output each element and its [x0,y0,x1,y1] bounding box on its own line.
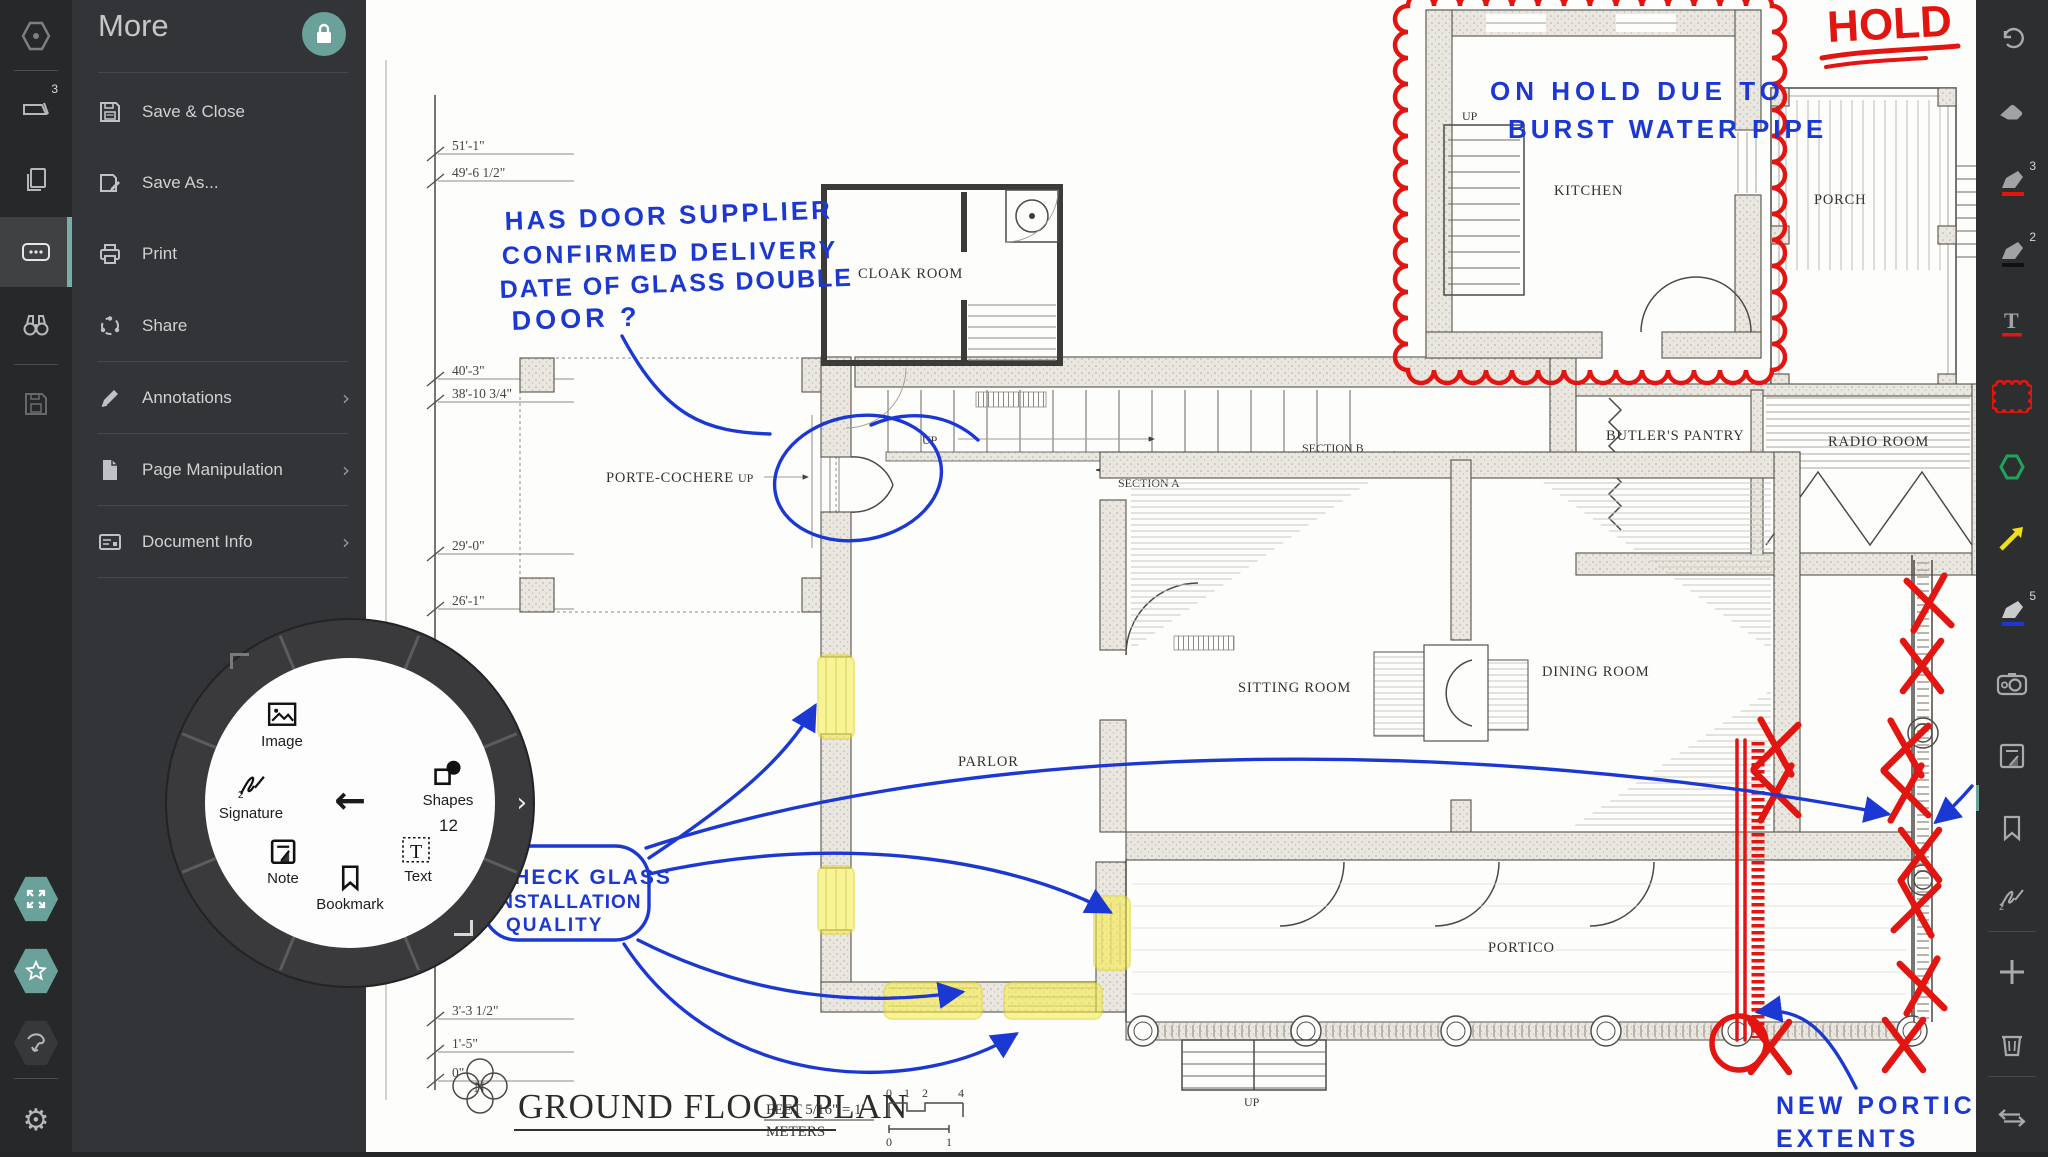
svg-text:PORCH: PORCH [1814,192,1866,208]
svg-text:CLOAK ROOM: CLOAK ROOM [858,266,963,282]
pages-button[interactable] [0,146,72,214]
document-info-icon [98,530,122,554]
plus-icon [1997,957,2027,987]
menu-item-page-manipulation[interactable]: Page Manipulation › [72,434,366,505]
more-menu-button[interactable] [0,218,72,286]
svg-text:PORTE-COCHERE: PORTE-COCHERE [606,470,734,486]
svg-text:DATE OF GLASS DOUBLE: DATE OF GLASS DOUBLE [499,264,853,304]
menu-item-save-as[interactable]: Save As... [72,147,366,218]
svg-text:KITCHEN: KITCHEN [1554,183,1623,199]
svg-text:UP: UP [1462,109,1478,123]
svg-text:UP: UP [1244,1095,1260,1109]
arrow-tool-button[interactable] [1976,509,2048,567]
radial-item-bookmark[interactable]: Bookmark [316,863,384,914]
pages-icon [23,166,49,194]
star-icon [24,959,48,983]
add-tool-button[interactable] [1976,943,2048,1001]
rail-divider [14,1078,58,1079]
annotation-toolbar: 3 2 T 5 [1976,0,2048,1152]
svg-text:1: 1 [946,1135,952,1149]
save-as-icon [98,171,122,195]
trash-icon [1999,1030,2025,1058]
arrow-icon [1995,521,2029,555]
panel-title: More [98,8,169,44]
hexagon-logo-icon [19,19,53,53]
eraser-tool-button[interactable] [1976,82,2048,140]
pen-icon [1996,596,2028,628]
porte-cochere: PORTE-COCHERE UP [520,358,839,612]
open-documents-button[interactable]: 3 [0,74,72,142]
svg-text:4: 4 [958,1086,964,1100]
signature-icon: 2 [1997,886,2027,912]
text-icon: T [401,835,435,865]
polygon-tool-button[interactable] [1976,438,2048,496]
pen-black-count-badge: 2 [2029,230,2036,244]
svg-text:DOOR ?: DOOR ? [511,302,641,336]
svg-text:40'-3": 40'-3" [452,363,485,378]
radial-item-label: Image [261,733,303,750]
menu-item-label: Print [142,244,177,264]
radial-item-label: Text [404,868,432,885]
svg-text:BUTLER'S PANTRY: BUTLER'S PANTRY [1606,428,1745,444]
svg-text:DINING ROOM: DINING ROOM [1542,664,1649,680]
search-button[interactable] [0,290,72,358]
touch-gesture-icon [24,1031,48,1055]
svg-text:T: T [410,841,422,863]
signature-tool-button[interactable]: 2 [1976,870,2048,928]
signature-icon: 2 [235,772,267,802]
menu-item-share[interactable]: Share [72,290,366,361]
undo-button[interactable] [1976,10,2048,68]
bookmark-icon [338,863,362,893]
svg-text:N: N [474,1080,485,1096]
shapes-icon [432,759,464,789]
svg-text:2: 2 [922,1086,928,1100]
fullscreen-button[interactable] [0,865,72,933]
panel-divider [98,577,348,578]
kitchen: UP KITCHEN [1426,10,1761,358]
svg-text:HAS DOOR SUPPLIER: HAS DOOR SUPPLIER [504,195,833,236]
svg-text:SITTING ROOM: SITTING ROOM [1238,680,1351,696]
settings-button[interactable]: ⚙ [0,1086,72,1154]
pen-icon [98,386,122,410]
pin-panel-button[interactable] [302,12,346,56]
printer-icon [98,242,122,266]
radial-item-label: Note [267,870,299,887]
svg-text:0: 0 [886,1086,892,1100]
share-icon [98,314,122,338]
text-highlight-tool-button[interactable]: T [1976,295,2048,353]
svg-text:EXTENTS: EXTENTS [1776,1125,1919,1152]
svg-text:1'-5": 1'-5" [452,1036,478,1051]
radial-item-note[interactable]: Note [267,837,299,888]
svg-text:29'-0": 29'-0" [452,538,485,553]
menu-item-print[interactable]: Print [72,218,366,289]
lock-icon [314,23,334,45]
svg-text:BURST WATER PIPE: BURST WATER PIPE [1508,114,1827,144]
binoculars-icon [21,310,51,338]
toolbar-divider [1988,931,2036,932]
pen-blue-count-badge: 5 [2029,589,2036,603]
radial-item-label: Bookmark [316,896,384,913]
radial-next-chevron-icon[interactable]: › [517,788,527,818]
chevron-right-icon: › [342,530,350,554]
hexagon-icon [1997,452,2027,482]
save-icon [23,391,49,417]
selection-corner-mark [230,653,249,669]
pen-icon [1996,237,2028,269]
svg-text:HOLD: HOLD [1826,0,1953,52]
svg-text:T: T [2004,308,2019,333]
pdf-page[interactable]: 51'-1" 49'-6 1/2" 40'-3" 38'-10 3/4" 29'… [366,0,1976,1152]
swap-arrows-icon [1996,1106,2028,1130]
radial-item-text[interactable]: T 12 Text [401,835,435,886]
highlight-annotations[interactable] [818,655,1130,1019]
svg-text:38'-10 3/4": 38'-10 3/4" [452,386,512,401]
eraser-icon [1997,99,2027,123]
document-tray-icon [21,95,51,121]
svg-text:0: 0 [886,1135,892,1149]
menu-item-document-info[interactable]: Document Info › [72,506,366,577]
undo-icon [1997,24,2027,54]
svg-text:RADIO ROOM: RADIO ROOM [1828,434,1929,450]
menu-item-label: Page Manipulation [142,460,283,480]
svg-text:51'-1": 51'-1" [452,138,485,153]
svg-text:PORTICO: PORTICO [1488,940,1555,956]
gear-icon: ⚙ [23,1103,50,1138]
save-icon [98,100,122,124]
svg-text:0": 0" [452,1065,464,1080]
menu-item-label: Save & Close [142,102,245,122]
note-icon [269,837,297,867]
svg-text:FEET 5/16" = 1': FEET 5/16" = 1' [766,1102,865,1118]
pen-tool-red-button[interactable]: 3 [1976,153,2048,211]
revision-cloud-icon [1992,379,2032,413]
radial-item-label: Signature [219,805,283,822]
radial-item-signature[interactable]: 2 Signature [219,772,283,823]
svg-text:3'-3 1/2": 3'-3 1/2" [452,1003,499,1018]
favorites-button[interactable] [0,937,72,1005]
floor-plan-drawing: 51'-1" 49'-6 1/2" 40'-3" 38'-10 3/4" 29'… [366,0,1976,1152]
svg-text:ON HOLD DUE TO: ON HOLD DUE TO [1490,76,1785,106]
image-icon [267,700,297,730]
quick-save-button[interactable] [0,370,72,438]
pen-tool-blue-button[interactable]: 5 [1976,583,2048,641]
documents-count-badge: 3 [51,82,58,96]
selection-corner-mark [454,920,473,936]
svg-text:26'-1": 26'-1" [452,593,485,608]
main-rooms: PARLOR SITTING ROOM DINING ROOM [958,452,1912,926]
svg-text:2: 2 [1999,902,2004,912]
text-underline-icon: T [1997,308,2027,340]
menu-item-label: Share [142,316,187,336]
pen-tool-black-button[interactable]: 2 [1976,224,2048,282]
left-rail: 3 [0,0,72,1152]
photo-note-button[interactable] [1976,655,2048,713]
svg-text:METERS: METERS [766,1124,825,1140]
bookmark-icon [2000,814,2024,842]
svg-text:49'-6 1/2": 49'-6 1/2" [452,165,505,180]
svg-text:CONFIRMED DELIVERY: CONFIRMED DELIVERY [502,236,839,270]
pen-icon [1996,166,2028,198]
menu-item-annotations[interactable]: Annotations › [72,362,366,433]
page-icon [98,458,122,482]
swap-toolbar-side-button[interactable] [1976,1089,2048,1147]
camera-icon [1996,671,2028,697]
svg-text:PARLOR: PARLOR [958,754,1019,770]
pen-red-count-badge: 3 [2029,159,2036,173]
radial-item-shapes[interactable]: Shapes [423,759,474,810]
menu-item-label: Save As... [142,173,219,193]
text-size-badge: 12 [439,817,458,836]
radial-tool-menu[interactable]: › ← Image 2 Signature Note Bookmark [167,620,533,986]
bookmark-tool-button[interactable] [1976,799,2048,857]
menu-item-label: Annotations [142,388,232,408]
menu-item-save-close[interactable]: Save & Close [72,76,366,147]
note-icon [1998,742,2026,770]
svg-text:NEW PORTICO: NEW PORTICO [1776,1092,1976,1120]
radial-item-label: Shapes [423,792,474,809]
expand-arrows-icon [24,887,48,911]
cloud-tool-button[interactable] [1976,367,2048,425]
delete-tool-button[interactable] [1976,1015,2048,1073]
fireplace [1374,645,1528,741]
panel-divider [98,72,348,73]
app-logo-button[interactable] [0,2,72,70]
svg-text:1: 1 [904,1086,910,1100]
chevron-right-icon: › [342,458,350,482]
touch-mode-button[interactable] [0,1009,72,1077]
rail-divider [14,70,58,71]
chevron-right-icon: › [342,386,350,410]
menu-item-label: Document Info [142,532,253,552]
svg-text:2: 2 [238,790,244,801]
more-pill-icon [21,241,51,263]
radial-back-arrow[interactable]: ← [334,778,366,822]
toolbar-divider [1988,1076,2036,1077]
radial-item-image[interactable]: Image [261,700,303,751]
svg-text:UP: UP [738,471,754,485]
rail-divider [14,364,58,365]
note-tool-button[interactable] [1976,727,2048,785]
